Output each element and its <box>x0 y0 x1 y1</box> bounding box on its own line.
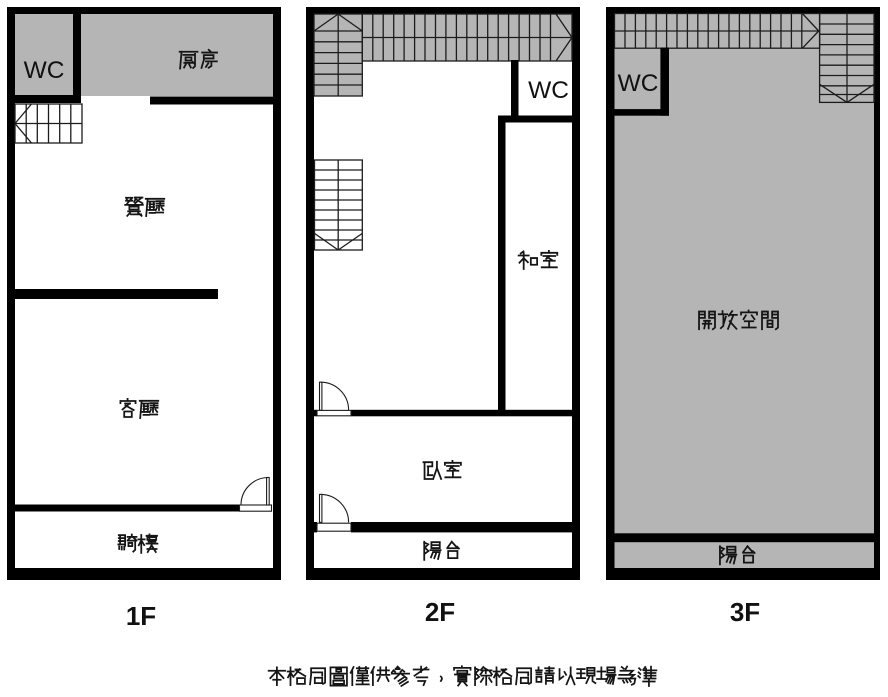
svg-text:WC: WC <box>528 77 569 104</box>
svg-text:3F: 3F <box>730 597 760 627</box>
svg-text:WC: WC <box>24 57 65 84</box>
svg-text:1F: 1F <box>126 601 156 631</box>
svg-text:2F: 2F <box>425 597 455 627</box>
svg-text:WC: WC <box>618 70 659 97</box>
